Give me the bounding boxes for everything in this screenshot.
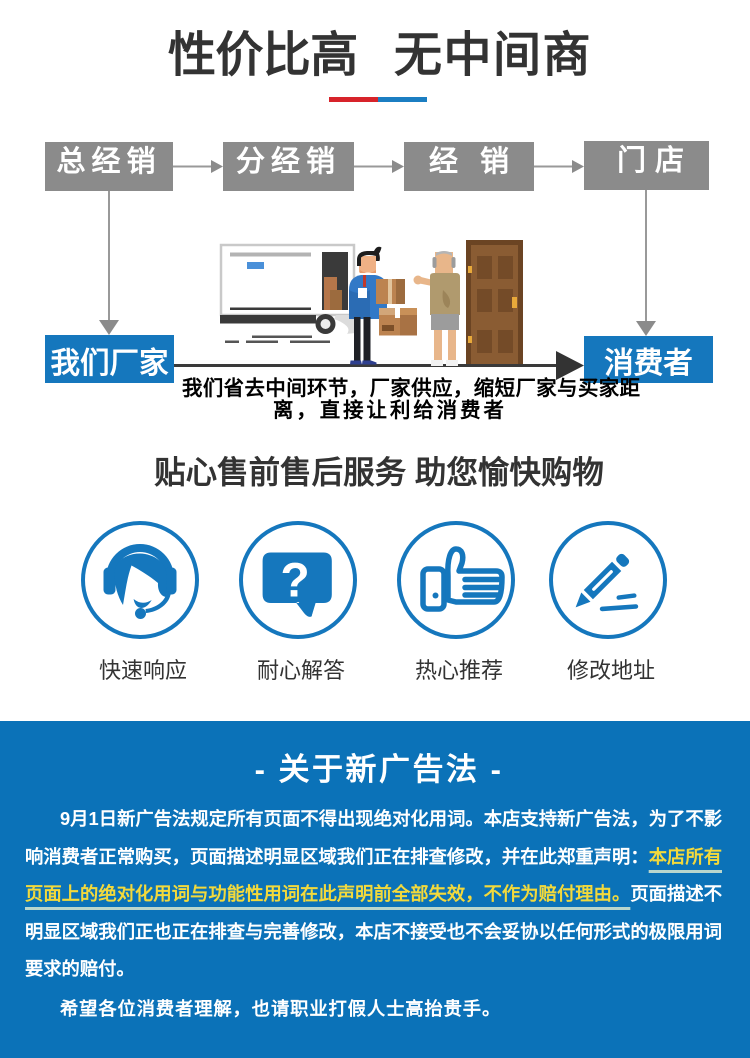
svg-text:?: ?: [280, 555, 309, 608]
